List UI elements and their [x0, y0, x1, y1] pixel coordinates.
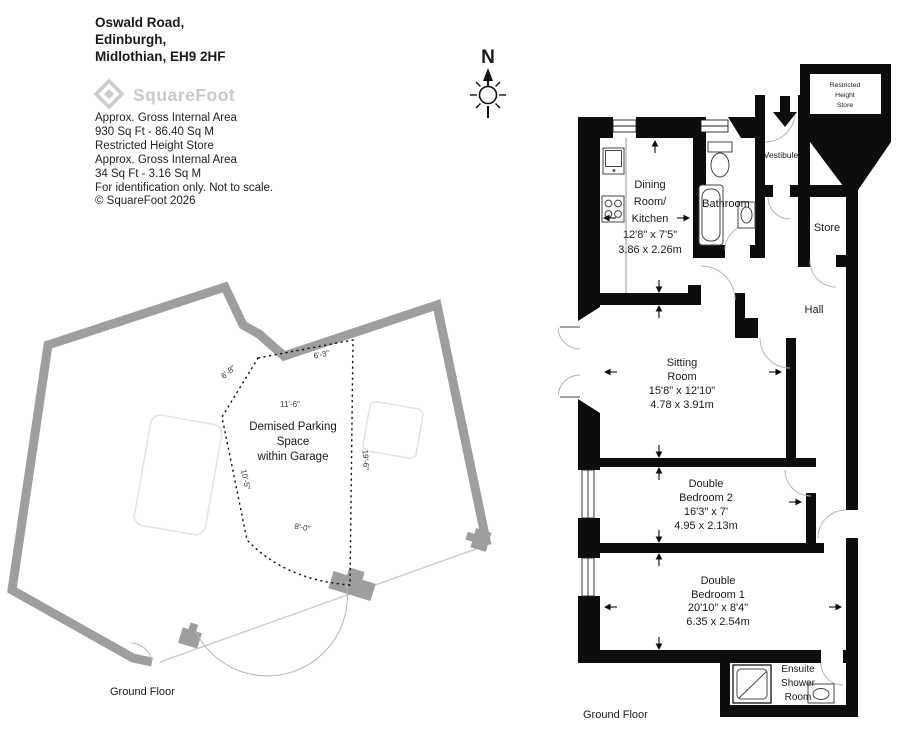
- north-compass-icon: N: [450, 35, 530, 135]
- dim-label: 6'-3": [313, 348, 331, 360]
- svg-text:Kitchen: Kitchen: [632, 213, 669, 225]
- info-line: 930 Sq Ft - 86.40 Sq M: [95, 126, 273, 140]
- info-line: © SquareFoot 2026: [95, 195, 273, 209]
- garage-pillar: [178, 621, 204, 649]
- svg-text:Shower: Shower: [781, 678, 816, 689]
- garage-floor-label: Ground Floor: [110, 686, 175, 698]
- info-line: Approx. Gross Internal Area: [95, 154, 273, 168]
- svg-text:6.35 x 2.54m: 6.35 x 2.54m: [686, 616, 750, 628]
- info-line: Restricted Height Store: [95, 140, 273, 154]
- svg-text:12'8" x 7'5": 12'8" x 7'5": [623, 229, 677, 241]
- room-label-vestibule: Vestibule: [764, 150, 799, 160]
- room-label-sitting: Sitting Room 15'8" x 12'10" 4.78 x 3.91m: [649, 357, 716, 411]
- garage-pillar: [328, 563, 378, 601]
- svg-text:within Garage: within Garage: [257, 451, 329, 463]
- svg-text:4.95 x 2.13m: 4.95 x 2.13m: [674, 520, 738, 532]
- stored-item-outline: [362, 401, 424, 460]
- svg-text:Dining: Dining: [634, 179, 665, 191]
- svg-text:Double: Double: [701, 575, 736, 587]
- address-line: Oswald Road,: [95, 14, 226, 31]
- svg-text:20'10" x 8'4": 20'10" x 8'4": [688, 602, 748, 614]
- room-label-bedroom2: Double Bedroom 2 16'3" x 7' 4.95 x 2.13m: [674, 478, 738, 532]
- info-line: Approx. Gross Internal Area: [95, 112, 273, 126]
- room-label-store: Store: [814, 222, 840, 234]
- dim-label: 6'-8": [219, 363, 237, 380]
- info-line: For identification only. Not to scale.: [95, 182, 273, 196]
- dim-label: 10'-5": [239, 469, 252, 491]
- svg-text:Store: Store: [837, 102, 853, 109]
- squarefoot-diamond-icon: [96, 81, 122, 107]
- svg-text:4.78 x 3.91m: 4.78 x 3.91m: [650, 399, 714, 411]
- shower-fixture: [733, 665, 771, 703]
- car-outline: [133, 414, 223, 537]
- toilet-fixture: [708, 142, 732, 177]
- parking-space-label: Demised Parking Space within Garage: [249, 421, 337, 463]
- svg-text:Room: Room: [667, 371, 696, 383]
- flat-floorplan: Dining Room/ Kitchen 12'8" x 7'5" 3.86 x…: [558, 50, 900, 734]
- svg-text:16'3" x 7': 16'3" x 7': [684, 506, 728, 518]
- svg-text:15'8" x 12'10": 15'8" x 12'10": [649, 385, 716, 397]
- svg-text:Demised Parking: Demised Parking: [249, 421, 337, 433]
- address-line: Edinburgh,: [95, 31, 226, 48]
- dim-label: 8'-0": [294, 522, 311, 534]
- property-address: Oswald Road, Edinburgh, Midlothian, EH9 …: [95, 14, 226, 65]
- french-doors: [558, 327, 580, 397]
- info-line: 34 Sq Ft - 3.16 Sq M: [95, 168, 273, 182]
- dim-label: 11'-6": [280, 400, 300, 409]
- garage-open-edge: [160, 545, 487, 662]
- room-label-hall: Hall: [805, 304, 824, 316]
- svg-text:Space: Space: [277, 436, 310, 448]
- garage-door-arc: [196, 581, 347, 676]
- svg-text:Bedroom 1: Bedroom 1: [691, 589, 745, 601]
- area-info: Approx. Gross Internal Area 930 Sq Ft - …: [95, 112, 273, 209]
- svg-text:Height: Height: [835, 92, 855, 99]
- address-line: Midlothian, EH9 2HF: [95, 48, 226, 65]
- svg-text:Room: Room: [785, 692, 812, 703]
- svg-text:Double: Double: [689, 478, 724, 490]
- logo-wordmark: SquareFoot: [133, 85, 235, 105]
- svg-text:Sitting: Sitting: [667, 357, 698, 369]
- dim-label: 19'-6": [360, 449, 370, 470]
- room-label-dining-kitchen: Dining Room/ Kitchen 12'8" x 7'5" 3.86 x…: [618, 179, 682, 256]
- room-label-bathroom: Bathroom: [702, 198, 750, 210]
- svg-text:Room/: Room/: [634, 196, 667, 208]
- north-label: N: [481, 47, 495, 68]
- squarefoot-logo: SquareFoot: [93, 78, 313, 110]
- bath-fixture: [699, 185, 723, 245]
- kitchen-sink-fixture: [603, 148, 624, 174]
- svg-text:Restricted: Restricted: [830, 82, 861, 89]
- room-label-ensuite: Ensuite Shower Room: [781, 664, 816, 703]
- svg-text:3.86 x 2.26m: 3.86 x 2.26m: [618, 244, 682, 256]
- svg-text:Bedroom 2: Bedroom 2: [679, 492, 733, 504]
- flat-floor-label: Ground Floor: [583, 709, 648, 721]
- room-label-bedroom1: Double Bedroom 1 20'10" x 8'4" 6.35 x 2.…: [686, 575, 750, 628]
- floorplan-page: Oswald Road, Edinburgh, Midlothian, EH9 …: [0, 0, 900, 734]
- garage-plan: Demised Parking Space within Garage 6'-3…: [0, 270, 520, 710]
- svg-text:Ensuite: Ensuite: [781, 664, 815, 675]
